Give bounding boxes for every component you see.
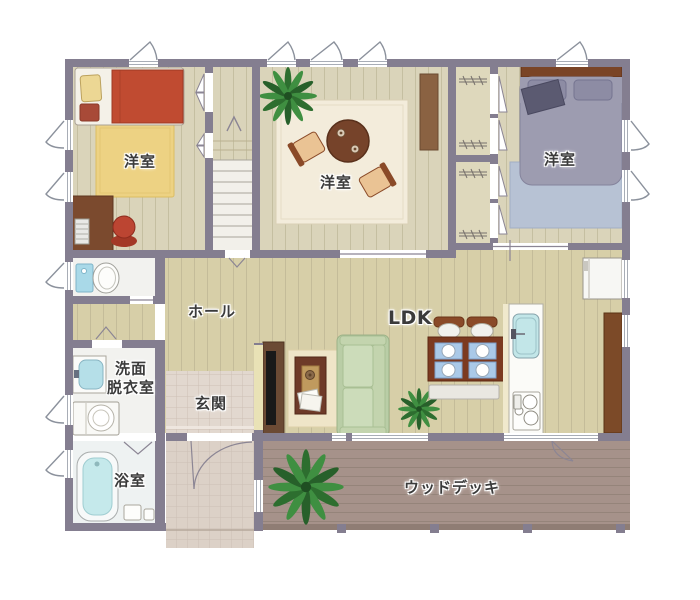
pillow	[574, 80, 612, 100]
faucet	[511, 329, 516, 339]
bedroom-east-furniture	[510, 66, 622, 228]
room-label-wood-deck: ウッドデッキ	[404, 479, 500, 498]
pillow	[80, 75, 102, 102]
bench	[429, 385, 499, 399]
red-duvet	[112, 70, 183, 123]
washing-machine	[73, 402, 119, 435]
room-label-entrance: 玄関	[195, 395, 227, 414]
washroom-label-line1: 洗面	[107, 359, 155, 378]
headboard-shelf	[521, 66, 622, 77]
stove	[513, 392, 540, 430]
room-label-ldk: LDK	[388, 307, 432, 331]
bath-stool	[124, 505, 141, 520]
bathtub	[77, 452, 118, 521]
low-table	[295, 357, 326, 414]
washroom-label-line2: 脱衣室	[107, 378, 155, 397]
room-label-bedroom-east: 洋室	[544, 151, 576, 170]
cream-rug	[276, 100, 408, 224]
refrigerator	[583, 258, 622, 299]
red-cushion	[80, 104, 99, 121]
room-label-bedroom-center: 洋室	[320, 174, 352, 193]
tall-cabinet	[604, 313, 622, 433]
sofa	[337, 335, 389, 436]
tv	[266, 351, 276, 425]
laptop	[75, 219, 89, 244]
bed-west	[75, 68, 184, 125]
washbasin	[73, 356, 106, 393]
bath-bucket	[144, 509, 154, 520]
desk-chair	[111, 216, 137, 247]
floor-plan-page: 洋室 洋室 洋室 ホール LDK 玄関 洗面 脱衣室 浴室 ウッドデッキ	[0, 0, 700, 600]
toilet	[76, 263, 119, 293]
round-table	[327, 120, 369, 162]
room-label-bedroom-west: 洋室	[124, 153, 156, 172]
floor-plan-drawing	[0, 0, 700, 600]
desk	[72, 196, 113, 253]
room-label-washroom: 洗面 脱衣室	[107, 359, 155, 397]
room-label-hall: ホール	[188, 303, 236, 322]
room-label-bathroom: 浴室	[114, 472, 146, 491]
kitchen-counter	[503, 304, 543, 438]
sideboard	[420, 74, 438, 150]
